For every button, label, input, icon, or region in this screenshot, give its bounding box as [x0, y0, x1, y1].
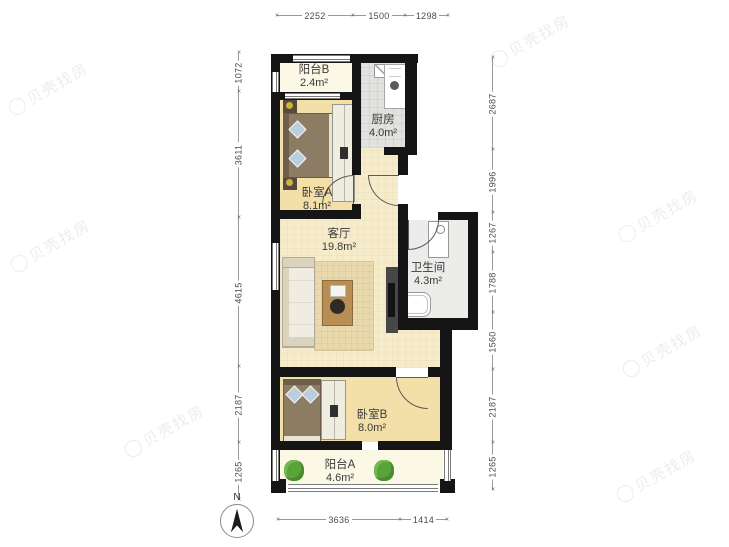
wall: [398, 212, 408, 220]
watermark-logo-icon: [620, 357, 643, 380]
room-area: 4.6m²: [326, 472, 354, 486]
compass: N: [220, 492, 254, 538]
dimension-value: 3636: [326, 515, 351, 525]
dimension-value: 2252: [302, 11, 327, 21]
pillow: [288, 149, 306, 167]
compass-north-arrow-icon: [223, 507, 251, 535]
wall: [440, 318, 452, 449]
dimension-value: 1414: [411, 515, 436, 525]
room-area: 19.8m²: [322, 241, 356, 255]
room-area: 8.0m²: [358, 422, 386, 436]
window: [272, 450, 279, 481]
dimension-value: 1265: [234, 459, 244, 484]
plant: [284, 460, 304, 481]
dim-arrow-tick: ×: [491, 367, 495, 374]
wall: [398, 147, 408, 175]
wall: [271, 441, 362, 450]
dim-arrow-tick: ×: [403, 13, 407, 20]
dimension-bottom: 3636: [278, 513, 400, 526]
dimension-value: 1267: [488, 220, 498, 245]
watermark-logo-icon: [8, 252, 31, 275]
sofa-armrest: [283, 337, 314, 347]
coffee-table: [322, 280, 353, 326]
dimension-top: 1298: [405, 9, 448, 22]
dimension-value: 1788: [488, 270, 498, 295]
dim-arrow-tick: ×: [445, 517, 449, 524]
room-name: 卫生间: [411, 261, 446, 275]
dimension-value: 2187: [234, 392, 244, 417]
dimension-right: 1788: [486, 253, 499, 313]
window: [285, 93, 340, 99]
dimension-left: 3611: [232, 92, 245, 218]
window: [444, 450, 451, 481]
watermark-text: 贝壳找房: [505, 9, 574, 61]
dimension-left: 4615: [232, 218, 245, 367]
wardrobe-handle: [330, 405, 338, 417]
room-label-bedroom-b: 卧室B 8.0m²: [342, 406, 402, 438]
dimension-right: 2187: [486, 370, 499, 443]
watermark: 贝壳找房: [619, 319, 707, 382]
room-label-bathroom: 卫生间 4.3m²: [398, 260, 458, 290]
dim-arrow-tick: ×: [237, 215, 241, 222]
kitchen-counter: [384, 64, 406, 109]
dimension-top: 1500: [353, 9, 405, 22]
room-area: 8.1m²: [303, 200, 331, 214]
wall: [271, 479, 286, 493]
room-label-balcony-b: 阳台B 2.4m²: [283, 62, 345, 92]
watermark-logo-icon: [6, 95, 29, 118]
watermark: 贝壳找房: [487, 9, 575, 72]
dim-arrow-tick: ×: [491, 250, 495, 257]
dimension-value: 3611: [234, 143, 244, 168]
dim-arrow-tick: ×: [276, 517, 280, 524]
room-name: 卧室B: [357, 408, 388, 422]
room-label-bedroom-a: 卧室A 8.1m²: [286, 185, 348, 215]
dim-arrow-tick: ×: [491, 487, 495, 494]
bed-a: [283, 113, 335, 178]
room-label-living-room: 客厅 19.8m²: [308, 226, 370, 256]
dim-arrow-tick: ×: [446, 13, 450, 20]
watermark: 贝壳找房: [5, 57, 93, 120]
dimension-top: 2252: [277, 9, 353, 22]
dim-arrow-tick: ×: [237, 440, 241, 447]
pillow: [301, 385, 319, 403]
dim-arrow-tick: ×: [237, 364, 241, 371]
pillow: [288, 120, 306, 138]
dimension-right: 2687: [486, 58, 499, 150]
room-name: 阳台B: [299, 63, 330, 77]
tv-screen: [388, 283, 395, 317]
dimension-right: 1267: [486, 213, 499, 253]
room-name: 阳台A: [325, 458, 356, 472]
dimension-value: 1298: [414, 11, 439, 21]
dimension-bottom: 1414: [400, 513, 447, 526]
dimension-right: 1560: [486, 313, 499, 370]
watermark-logo-icon: [616, 222, 639, 245]
watermark-logo-icon: [122, 437, 145, 460]
dimension-right: 1996: [486, 150, 499, 213]
dim-arrow-tick: ×: [491, 147, 495, 154]
dimension-value: 2187: [488, 394, 498, 419]
dim-arrow-tick: ×: [351, 13, 355, 20]
dim-arrow-tick: ×: [491, 210, 495, 217]
wall: [468, 212, 478, 330]
sofa: [282, 257, 315, 348]
dimension-value: 2687: [488, 91, 498, 116]
room-area: 4.3m²: [414, 275, 442, 289]
compass-north-label: N: [233, 492, 240, 503]
room-name: 厨房: [372, 113, 395, 127]
dim-arrow-tick: ×: [275, 13, 279, 20]
dim-arrow-tick: ×: [237, 89, 241, 96]
dimension-value: 4615: [234, 280, 244, 305]
dim-arrow-tick: ×: [491, 55, 495, 62]
wardrobe-handle: [340, 147, 348, 159]
dimension-value: 1560: [488, 329, 498, 354]
dim-arrow-tick: ×: [237, 50, 241, 57]
wall: [378, 441, 452, 450]
dimension-value: 1500: [366, 11, 391, 21]
floorplan-canvas: 贝壳找房 贝壳找房 贝壳找房 贝壳找房 贝壳找房 贝壳找房 贝壳找房: [0, 0, 729, 547]
room-name: 客厅: [328, 227, 351, 241]
window: [272, 243, 279, 290]
floor-living-room-ext: [398, 330, 442, 368]
watermark-logo-icon: [614, 482, 637, 505]
window: [293, 55, 350, 62]
window: [272, 72, 279, 92]
dim-arrow-tick: ×: [491, 310, 495, 317]
tray: [330, 285, 346, 297]
watermark-text: 贝壳找房: [23, 57, 92, 109]
wall: [271, 367, 396, 377]
dim-arrow-tick: ×: [398, 517, 402, 524]
room-name: 卧室A: [302, 186, 333, 200]
watermark: 贝壳找房: [121, 399, 209, 462]
room-label-balcony-a: 阳台A 4.6m²: [310, 457, 370, 487]
watermark-text: 贝壳找房: [631, 444, 700, 496]
dimension-value: 1996: [488, 169, 498, 194]
dimension-right: 1265: [486, 443, 499, 490]
dimension-left: 2187: [232, 367, 245, 443]
watermark-text: 贝壳找房: [633, 184, 702, 236]
dimension-left: 1072: [232, 53, 245, 92]
tv-cabinet: [386, 267, 398, 333]
dim-arrow-tick: ×: [491, 440, 495, 447]
wall: [440, 479, 455, 493]
room-area: 2.4m²: [300, 77, 328, 91]
bed-b: [283, 379, 321, 442]
nightstand: [283, 99, 297, 113]
watermark-text: 贝壳找房: [637, 319, 706, 371]
watermark: 贝壳找房: [7, 214, 95, 277]
dimension-value: 1072: [234, 60, 244, 85]
room-area: 4.0m²: [369, 127, 397, 141]
wall: [398, 318, 478, 330]
room-label-kitchen: 厨房 4.0m²: [353, 112, 413, 142]
kettle: [330, 299, 345, 314]
watermark: 贝壳找房: [615, 184, 703, 247]
plant: [374, 460, 394, 481]
wall: [428, 367, 452, 377]
watermark-text: 贝壳找房: [25, 214, 94, 266]
sofa-armrest: [283, 258, 314, 268]
watermark: 贝壳找房: [613, 444, 701, 507]
watermark-text: 贝壳找房: [139, 399, 208, 451]
dimension-value: 1265: [488, 454, 498, 479]
compass-circle: [220, 504, 254, 538]
